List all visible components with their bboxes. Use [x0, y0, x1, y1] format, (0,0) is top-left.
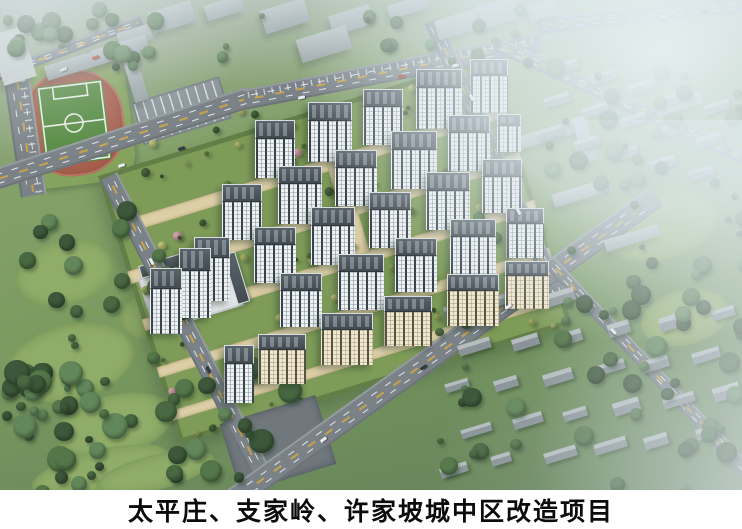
tree: [630, 201, 639, 210]
tree: [472, 19, 487, 34]
tree: [435, 328, 443, 336]
tree: [631, 285, 651, 305]
tree: [651, 127, 663, 139]
tree: [200, 460, 222, 482]
tree: [3, 15, 13, 25]
tree: [679, 71, 689, 81]
tree: [639, 361, 649, 371]
tree: [710, 178, 720, 188]
tree: [425, 39, 436, 50]
residential-tower: [506, 208, 544, 258]
tree: [670, 378, 680, 388]
context-building: [203, 0, 244, 21]
tree: [128, 61, 138, 71]
tree: [646, 257, 658, 269]
building-roof: [447, 274, 499, 291]
tree: [112, 63, 120, 71]
caption-bar: 太平庄、支家岭、许家坡城中区改造项目: [0, 490, 742, 529]
tree: [514, 4, 526, 16]
tree: [735, 104, 742, 112]
tree: [54, 422, 74, 442]
village-house: [543, 91, 571, 108]
building-facade: [224, 364, 254, 403]
tree: [731, 193, 738, 200]
residential-tower: [482, 159, 522, 213]
tree: [619, 178, 630, 189]
tree: [16, 402, 26, 412]
site-tree: [148, 139, 158, 149]
tree: [653, 64, 670, 81]
building-roof: [448, 115, 490, 133]
tree: [155, 401, 177, 423]
site-tree: [161, 357, 167, 363]
tree: [576, 295, 594, 313]
tree: [462, 363, 469, 370]
aerial-render-scene: [0, 0, 742, 490]
tree: [567, 246, 576, 255]
village-house: [627, 78, 655, 95]
building-facade: [450, 237, 496, 275]
tree: [223, 43, 229, 49]
vehicle: [298, 95, 305, 99]
building-roof: [416, 69, 462, 88]
tree: [726, 386, 742, 404]
tree: [716, 442, 737, 463]
building-roof: [224, 345, 254, 364]
building-roof: [391, 131, 437, 150]
tree: [655, 161, 669, 175]
site-tree: [194, 430, 200, 436]
residential-tower: [450, 219, 496, 275]
residential-tower: [338, 254, 384, 310]
tree: [599, 110, 618, 129]
tree: [60, 403, 71, 414]
building-roof: [505, 261, 549, 276]
site-tree: [239, 253, 249, 263]
building-roof: [222, 184, 262, 202]
residential-slab: [258, 334, 306, 384]
tree: [678, 442, 693, 457]
tree: [719, 352, 740, 373]
tree: [70, 305, 83, 318]
tree: [623, 374, 643, 394]
tree: [117, 201, 137, 221]
tree: [604, 144, 620, 160]
tree: [546, 58, 565, 77]
residential-tower: [470, 59, 508, 113]
tree: [506, 398, 526, 418]
tree: [630, 171, 646, 187]
tree: [725, 109, 742, 126]
caption-text: 太平庄、支家岭、许家坡城中区改造项目: [128, 492, 614, 528]
tree: [646, 336, 667, 357]
tree: [390, 16, 403, 29]
residential-tower: [224, 345, 254, 403]
old-town-house: [543, 445, 577, 465]
tree: [238, 418, 252, 432]
site-tree: [212, 125, 221, 134]
site-tree: [199, 219, 207, 227]
tree: [152, 249, 166, 263]
building-roof: [278, 166, 322, 185]
old-town-house: [593, 435, 628, 455]
building-facade: [395, 256, 437, 293]
building-roof: [321, 313, 373, 330]
residential-tower: [395, 238, 437, 292]
tree: [587, 366, 605, 384]
tree: [71, 476, 88, 490]
building-facade: [506, 224, 544, 258]
building-facade: [447, 291, 499, 326]
building-roof: [450, 219, 496, 237]
old-town-house: [492, 375, 519, 393]
tree: [554, 330, 572, 348]
site-tree: [550, 323, 555, 328]
tree: [380, 39, 393, 52]
tree: [462, 388, 482, 408]
tree: [59, 361, 83, 385]
tree: [469, 449, 479, 459]
tree: [43, 27, 58, 42]
building-facade: [258, 350, 306, 384]
site-tree: [183, 160, 189, 166]
tree: [7, 40, 24, 57]
road-lane-line: [542, 1, 740, 23]
tree: [48, 292, 65, 309]
tree: [569, 152, 587, 170]
building-roof: [426, 172, 470, 191]
project-rendering-figure: 太平庄、支家岭、许家坡城中区改造项目: [0, 0, 742, 529]
building-roof: [308, 102, 352, 121]
building-roof: [150, 268, 182, 289]
tree: [630, 408, 643, 421]
tree: [737, 259, 742, 272]
building-roof: [311, 207, 355, 226]
tree: [523, 58, 533, 68]
tree: [736, 231, 742, 237]
tree: [675, 306, 690, 321]
tree: [491, 37, 498, 44]
site-tree: [140, 167, 151, 178]
tree: [510, 439, 522, 451]
tree: [733, 318, 742, 335]
road-center-line: [544, 4, 738, 27]
site-tree: [208, 424, 217, 433]
tree: [725, 216, 732, 223]
building-roof: [497, 114, 521, 126]
tree: [510, 29, 519, 38]
old-town-house: [542, 367, 574, 387]
residential-tower: [280, 273, 322, 327]
building-roof: [335, 150, 377, 168]
tree: [676, 85, 692, 101]
residential-tower: [150, 268, 182, 334]
site-tree: [177, 235, 182, 240]
building-facade: [497, 126, 521, 152]
building-roof: [179, 248, 211, 270]
site-tree: [268, 401, 274, 407]
tree: [609, 307, 617, 315]
tree: [112, 219, 130, 237]
tree: [736, 210, 742, 227]
tree: [594, 72, 601, 79]
site-tree: [405, 105, 411, 111]
building-facade: [321, 330, 373, 365]
tree: [365, 17, 371, 23]
road-top-edge: [537, 0, 742, 34]
tree: [610, 477, 625, 490]
tree: [114, 273, 130, 289]
building-roof: [384, 296, 432, 312]
tree: [100, 377, 109, 386]
tree: [71, 342, 79, 350]
tree: [166, 465, 183, 482]
building-facade: [150, 289, 182, 334]
tree: [717, 425, 725, 433]
building-roof: [255, 120, 295, 139]
building-roof: [363, 89, 403, 107]
village-house: [619, 111, 647, 128]
tree: [19, 252, 35, 268]
residential-tower: [497, 114, 521, 152]
old-town-house: [642, 431, 668, 449]
tree: [17, 15, 35, 33]
tree: [234, 472, 244, 482]
building-roof: [338, 254, 384, 272]
building-roof: [280, 273, 322, 290]
residential-slab: [384, 296, 432, 346]
building-roof: [482, 159, 522, 176]
tree: [661, 388, 674, 401]
context-building: [296, 25, 353, 63]
building-roof: [470, 59, 508, 76]
tree: [599, 310, 609, 320]
building-roof: [369, 192, 411, 210]
tree: [545, 141, 554, 150]
tree: [13, 414, 37, 438]
site-tree: [159, 173, 164, 178]
site-tree: [301, 143, 307, 149]
tree: [55, 449, 76, 470]
tree: [563, 297, 573, 307]
tree: [733, 89, 742, 98]
tree: [691, 269, 701, 279]
building-roof: [506, 208, 544, 224]
tree: [604, 88, 620, 104]
site-tree: [234, 141, 241, 148]
site-tree: [203, 151, 209, 157]
residential-slab: [505, 261, 549, 309]
tree: [593, 175, 609, 191]
tree: [103, 296, 120, 313]
residential-slab: [447, 274, 499, 326]
residential-tower: [179, 248, 211, 318]
residential-slab: [321, 313, 373, 365]
tree: [217, 51, 229, 63]
tree: [142, 46, 155, 59]
tree: [186, 439, 206, 459]
building-roof: [395, 238, 437, 255]
tree: [198, 377, 216, 395]
tree: [86, 18, 98, 30]
tree: [175, 379, 194, 398]
site-tree: [434, 314, 442, 322]
building-facade: [280, 291, 322, 328]
tree: [147, 352, 159, 364]
tree: [33, 225, 48, 240]
site-tree: [402, 110, 409, 117]
tree: [603, 352, 618, 367]
building-facade: [338, 272, 384, 310]
building-facade: [179, 271, 211, 319]
building-facade: [384, 312, 432, 346]
tree: [147, 12, 165, 30]
tree: [2, 411, 12, 421]
tree: [632, 154, 642, 164]
tree: [544, 161, 561, 178]
old-town-house: [461, 422, 493, 440]
site-tree: [250, 110, 260, 120]
tree: [64, 256, 83, 275]
tree: [218, 408, 231, 421]
old-town-house: [490, 451, 512, 466]
building-facade: [470, 76, 508, 113]
old-town-house: [691, 346, 721, 364]
site-tree: [527, 318, 536, 327]
tree: [55, 471, 68, 484]
tree: [574, 426, 594, 446]
building-roof: [258, 334, 306, 350]
tree: [667, 112, 683, 128]
context-building: [259, 0, 310, 34]
building-roof: [254, 227, 296, 245]
old-town-house: [562, 406, 588, 422]
tree: [437, 438, 444, 445]
tree: [440, 457, 458, 475]
